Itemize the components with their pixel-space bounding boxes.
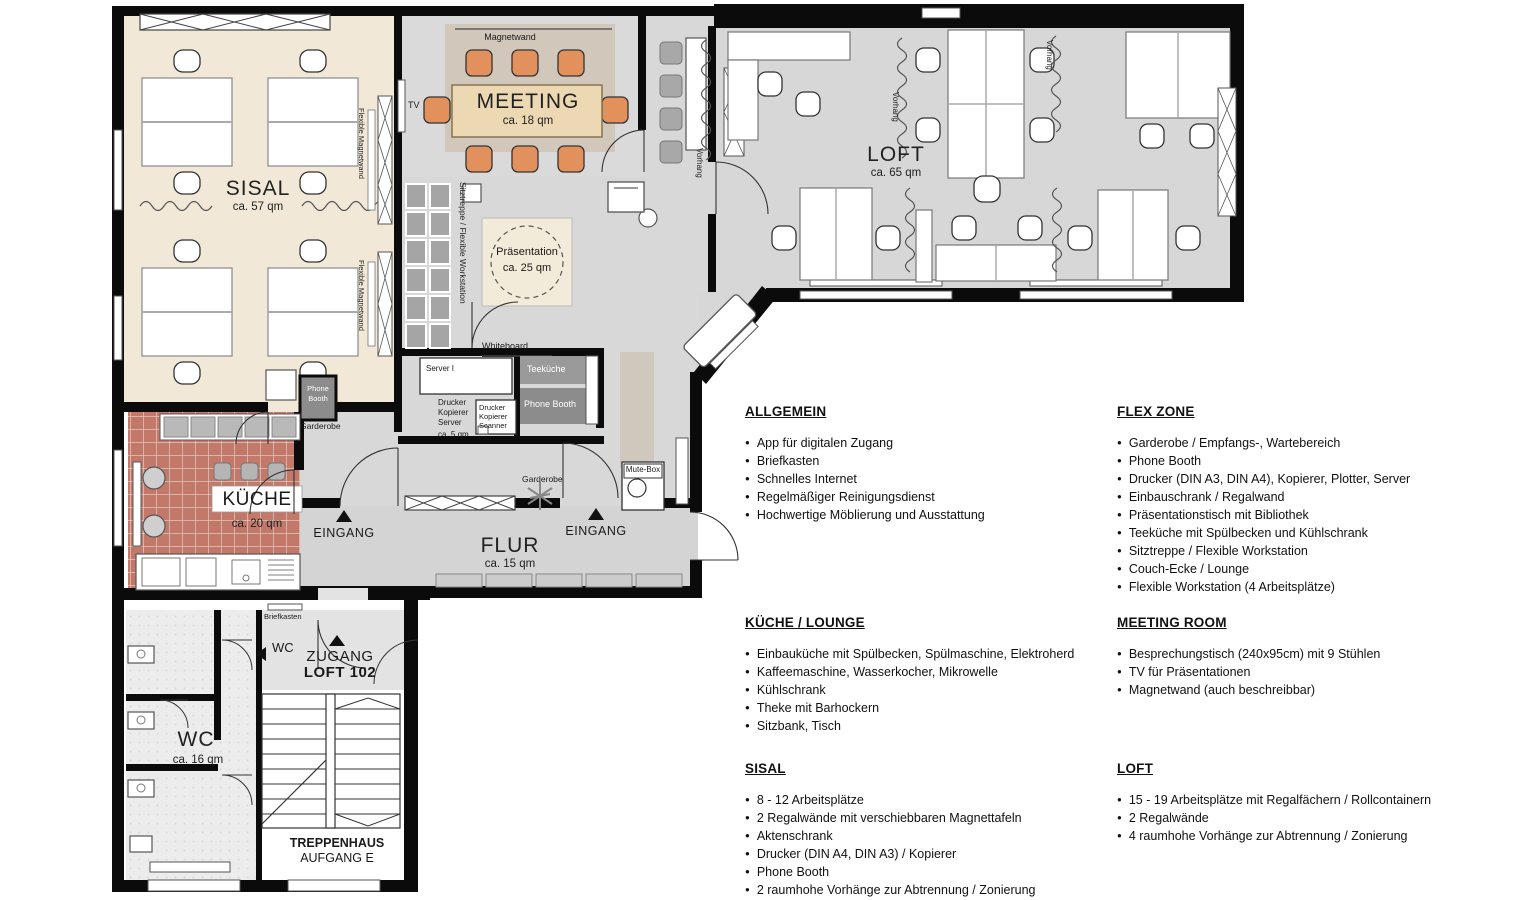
phone-booth-label-sisal-1: Phone bbox=[307, 384, 329, 393]
flur-room-area: ca. 15 qm bbox=[485, 558, 536, 570]
treppenhaus-label-2: AUFGANG E bbox=[300, 851, 374, 865]
legend-sisal: SISAL 8 - 12 Arbeitsplätze2 Regalwände m… bbox=[745, 761, 1115, 900]
legend-item: Regelmäßiger Reinigungsdienst bbox=[745, 489, 1115, 507]
server-line-1: Drucker bbox=[438, 398, 466, 408]
legend-item: Drucker (DIN A3, DIN A4), Kopierer, Plot… bbox=[1117, 471, 1536, 489]
legend-meetingroom-title: MEETING ROOM bbox=[1117, 615, 1536, 630]
wc-room-area: ca. 16 qm bbox=[173, 754, 224, 766]
legend-sisal-title: SISAL bbox=[745, 761, 1115, 776]
flur-room-label: FLUR bbox=[481, 534, 540, 558]
legend-item: TV für Präsentationen bbox=[1117, 664, 1536, 682]
sitztreppe-label: Sitztreppe / Flexible Workstation bbox=[458, 182, 468, 304]
legend-item: 4 raumhohe Vorhänge zur Abtrennung / Zon… bbox=[1117, 828, 1536, 846]
treppenhaus-label-1: TREPPENHAUS bbox=[290, 836, 384, 850]
sisal-room-area: ca. 57 qm bbox=[233, 201, 284, 213]
legend-item: Präsentationstisch mit Bibliothek bbox=[1117, 507, 1536, 525]
legend-flexzone: FLEX ZONE Garderobe / Empfangs-, Wartebe… bbox=[1117, 404, 1536, 597]
legend-item: Magnetwand (auch beschreibbar) bbox=[1117, 682, 1536, 700]
legend-item: Aktenschrank bbox=[745, 828, 1115, 846]
briefkasten-label: Briefkasten bbox=[264, 612, 302, 621]
legend-item: Garderobe / Empfangs-, Wartebereich bbox=[1117, 435, 1536, 453]
meeting-room-label: MEETING bbox=[477, 90, 580, 114]
legend-item: 15 - 19 Arbeitsplätze mit Regalfächern /… bbox=[1117, 792, 1536, 810]
garderobe-label-1: Garderobe bbox=[300, 421, 341, 431]
server-room-label: Server I bbox=[426, 364, 454, 374]
legend-item: Teeküche mit Spülbecken und Kühlschrank bbox=[1117, 525, 1536, 543]
legend-item: Sitzbank, Tisch bbox=[745, 718, 1115, 736]
server-line-2: Kopierer bbox=[438, 408, 468, 418]
wc-room-label: WC bbox=[178, 728, 215, 752]
phone-booth-label-sisal-2: Booth bbox=[308, 394, 328, 403]
legend-allgemein-title: ALLGEMEIN bbox=[745, 404, 1115, 419]
legend-item: Phone Booth bbox=[745, 864, 1115, 882]
legend-item: 2 raumhohe Vorhänge zur Abtrennung / Zon… bbox=[745, 882, 1115, 900]
teekueche-label: Teeküche bbox=[527, 364, 566, 374]
server-room-area: ca. 5 qm bbox=[438, 430, 469, 440]
vorhang-label-corridor: Vorhang bbox=[695, 148, 704, 178]
legend-item: Hochwertige Möblierung und Ausstattung bbox=[745, 507, 1115, 525]
legend-item: Couch-Ecke / Lounge bbox=[1117, 561, 1536, 579]
legend-item: Kühlschrank bbox=[745, 682, 1115, 700]
legend-item: Einbauschrank / Regalwand bbox=[1117, 489, 1536, 507]
eingang-label-1: EINGANG bbox=[313, 526, 374, 540]
tv-label: TV bbox=[408, 100, 420, 110]
legend-loft: LOFT 15 - 19 Arbeitsplätze mit Regalfäch… bbox=[1117, 761, 1536, 846]
legend-item: App für digitalen Zugang bbox=[745, 435, 1115, 453]
legend-item: Briefkasten bbox=[745, 453, 1115, 471]
legend-allgemein: ALLGEMEIN App für digitalen ZugangBriefk… bbox=[745, 404, 1115, 525]
legend-item: Schnelles Internet bbox=[745, 471, 1115, 489]
legend-kueche-lounge-title: KÜCHE / LOUNGE bbox=[745, 615, 1115, 630]
legend-allgemein-list: App für digitalen ZugangBriefkastenSchne… bbox=[745, 435, 1115, 525]
loft-room-label: LOFT bbox=[867, 143, 925, 167]
legend-meetingroom: MEETING ROOM Besprechungstisch (240x95cm… bbox=[1117, 615, 1536, 700]
kueche-room-area: ca. 20 qm bbox=[232, 518, 283, 530]
wc-door-label: WC bbox=[272, 640, 294, 655]
legend-item: Drucker (DIN A4, DIN A3) / Kopierer bbox=[745, 846, 1115, 864]
legend-kueche-lounge: KÜCHE / LOUNGE Einbauküche mit Spülbecke… bbox=[745, 615, 1115, 736]
sisal-room-label: SISAL bbox=[226, 177, 291, 201]
floorplan-screenshot: SISAL ca. 57 qm MEETING ca. 18 qm Magnet… bbox=[0, 0, 1536, 900]
eingang-label-2: EINGANG bbox=[565, 524, 626, 538]
legend-flexzone-title: FLEX ZONE bbox=[1117, 404, 1536, 419]
flexible-magnetwand-label-2: Flexible Magnetwand bbox=[357, 260, 366, 331]
scanner-line-1: Drucker bbox=[479, 403, 505, 412]
praesentation-area: ca. 25 qm bbox=[503, 262, 551, 274]
legend-kueche-lounge-list: Einbauküche mit Spülbecken, Spülmaschine… bbox=[745, 646, 1115, 736]
praesentation-label: Präsentation bbox=[496, 246, 558, 258]
magnetwand-label: Magnetwand bbox=[484, 32, 536, 42]
flexible-magnetwand-label-1: Flexible Magnetwand bbox=[357, 108, 366, 179]
legend-item: Phone Booth bbox=[1117, 453, 1536, 471]
legend-item: 8 - 12 Arbeitsplätze bbox=[745, 792, 1115, 810]
scanner-line-2: Kopierer bbox=[479, 412, 507, 421]
mute-box-label: Mute-Box bbox=[626, 465, 660, 474]
zugang-label-2: LOFT 102 bbox=[304, 664, 376, 681]
legend-loft-title: LOFT bbox=[1117, 761, 1536, 776]
legend-item: Sitztreppe / Flexible Workstation bbox=[1117, 543, 1536, 561]
scanner-line-3: Scanner bbox=[479, 421, 507, 430]
legend-item: Einbauküche mit Spülbecken, Spülmaschine… bbox=[745, 646, 1115, 664]
legend-meetingroom-list: Besprechungstisch (240x95cm) mit 9 Stühl… bbox=[1117, 646, 1536, 700]
legend-item: 2 Regalwände mit verschiebbaren Magnetta… bbox=[745, 810, 1115, 828]
whiteboard-label: Whiteboard bbox=[482, 341, 528, 351]
legend-item: Theke mit Barhockern bbox=[745, 700, 1115, 718]
legend-loft-list: 15 - 19 Arbeitsplätze mit Regalfächern /… bbox=[1117, 792, 1536, 846]
legend-flexzone-list: Garderobe / Empfangs-, WartebereichPhone… bbox=[1117, 435, 1536, 597]
legend-item: Kaffeemaschine, Wasserkocher, Mikrowelle bbox=[745, 664, 1115, 682]
meeting-room-area: ca. 18 qm bbox=[503, 115, 554, 127]
loft-room-area: ca. 65 qm bbox=[871, 167, 922, 179]
phone-booth-label-flex: Phone Booth bbox=[524, 399, 576, 409]
legend-item: 2 Regalwände bbox=[1117, 810, 1536, 828]
zugang-label-1: ZUGANG bbox=[306, 648, 373, 665]
vorhang-label-loft-1: Vorhang bbox=[891, 92, 900, 122]
kueche-room-label: KÜCHE bbox=[222, 489, 291, 511]
legend-item: Flexible Workstation (4 Arbeitsplätze) bbox=[1117, 579, 1536, 597]
legend-sisal-list: 8 - 12 Arbeitsplätze2 Regalwände mit ver… bbox=[745, 792, 1115, 900]
vorhang-label-loft-2: Vorhang bbox=[1045, 40, 1054, 70]
server-line-3: Server bbox=[438, 418, 462, 428]
legend-item: Besprechungstisch (240x95cm) mit 9 Stühl… bbox=[1117, 646, 1536, 664]
garderobe-label-2: Garderobe bbox=[522, 474, 563, 484]
